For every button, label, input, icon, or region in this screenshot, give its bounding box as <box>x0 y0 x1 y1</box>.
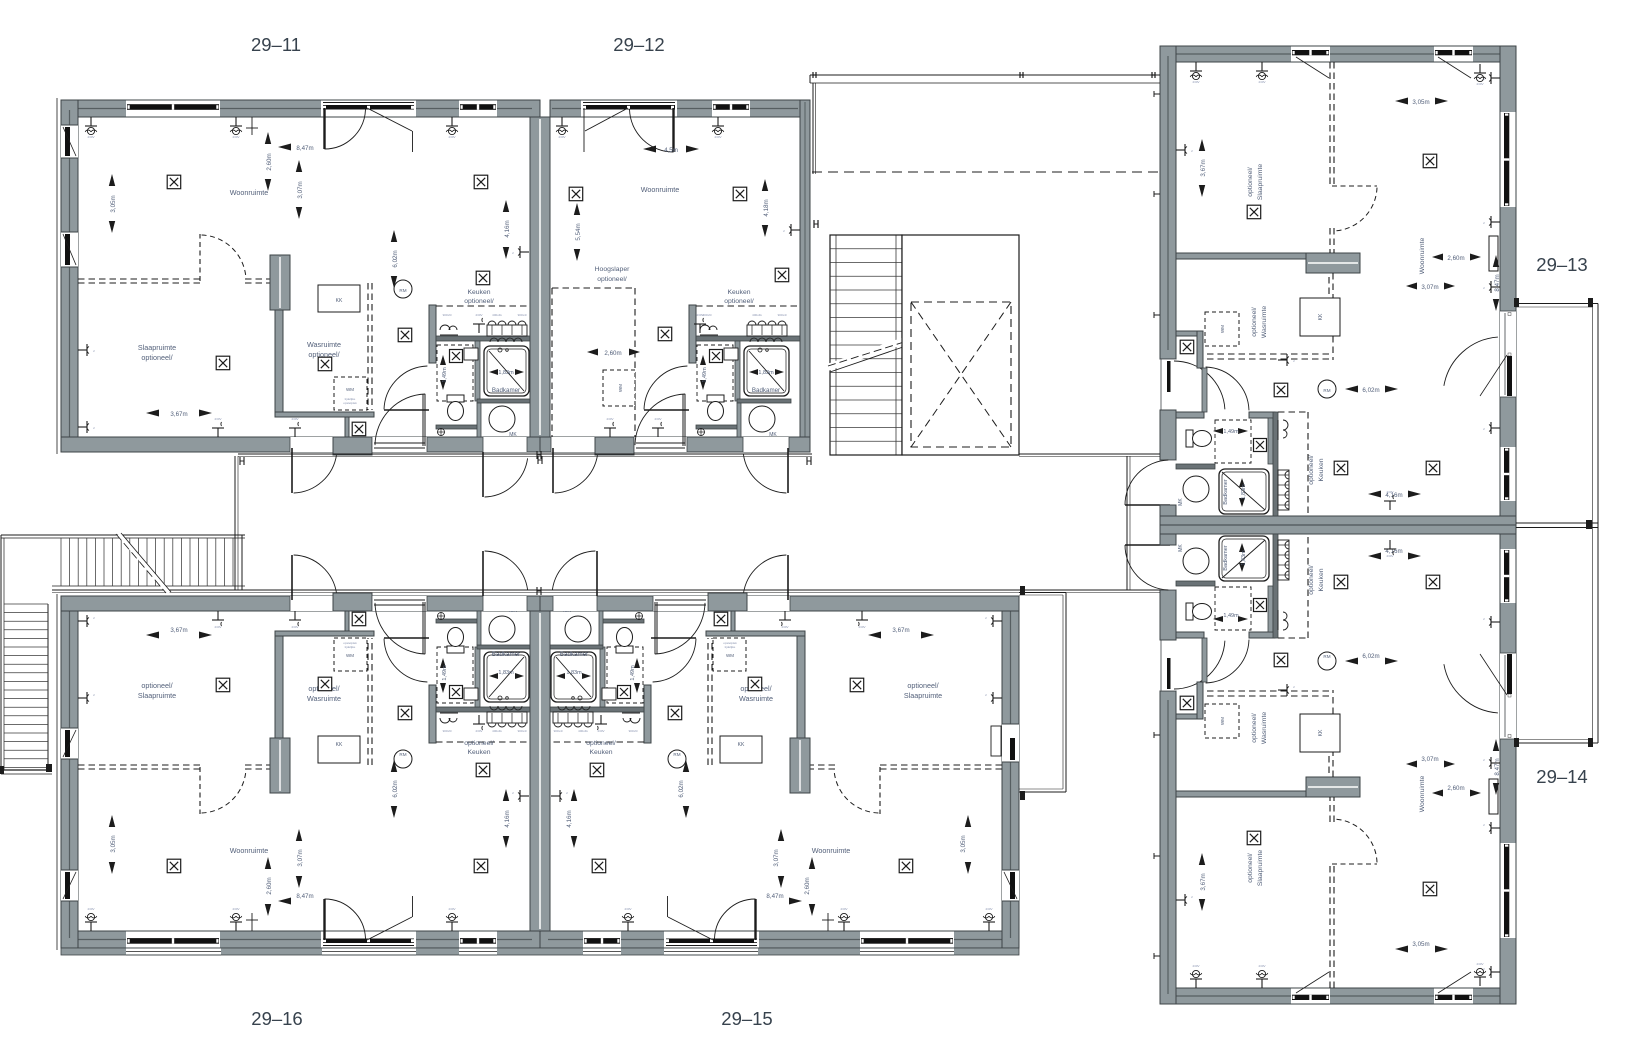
svg-text:3,67m: 3,67m <box>1200 159 1207 176</box>
svg-text:RM: RM <box>673 752 680 757</box>
svg-text:Badkamer: Badkamer <box>492 387 520 394</box>
svg-text:230V: 230V <box>475 313 482 317</box>
svg-text:WM: WM <box>1220 717 1225 725</box>
svg-text:8,47m: 8,47m <box>766 893 783 900</box>
svg-text:opstelplek: opstelplek <box>723 641 737 645</box>
svg-text:230V: 230V <box>448 907 455 911</box>
svg-text:230V: 230V <box>654 417 661 421</box>
svg-text:2,60m: 2,60m <box>1447 785 1464 792</box>
svg-text:6,02m: 6,02m <box>392 250 399 267</box>
svg-text:400x4k: 400x4k <box>492 729 502 733</box>
svg-text:KK: KK <box>738 742 745 748</box>
svg-text:900x4l: 900x4l <box>518 729 527 733</box>
svg-text:2,60m: 2,60m <box>266 877 273 894</box>
svg-text:230V: 230V <box>232 135 239 139</box>
svg-text:230V: 230V <box>214 417 221 421</box>
svg-text:29–11: 29–11 <box>251 34 301 55</box>
svg-text:230V: 230V <box>781 625 788 629</box>
svg-text:230V: 230V <box>985 907 992 911</box>
svg-text:900x4l: 900x4l <box>554 729 563 733</box>
svg-text:1,83m: 1,83m <box>498 370 514 376</box>
svg-text:3,07m: 3,07m <box>297 181 304 198</box>
svg-text:RM: RM <box>399 752 406 757</box>
svg-text:optioneel/: optioneel/ <box>1308 565 1315 595</box>
svg-text:3,07m: 3,07m <box>773 849 780 866</box>
svg-text:8,47m: 8,47m <box>296 893 313 900</box>
svg-text:RM: RM <box>399 288 406 293</box>
svg-text:3,67m: 3,67m <box>1200 873 1207 890</box>
svg-text:optioneel/: optioneel/ <box>141 681 172 690</box>
svg-text:1,83m: 1,83m <box>566 670 582 676</box>
svg-text:Hoogslaper: Hoogslaper <box>595 266 630 273</box>
svg-text:1,49m: 1,49m <box>442 665 448 681</box>
svg-text:6,02m: 6,02m <box>1362 653 1379 660</box>
svg-text:3,67m: 3,67m <box>170 411 187 418</box>
svg-text:optioneel/: optioneel/ <box>724 298 754 305</box>
svg-text:Keuken: Keuken <box>467 289 490 296</box>
svg-text:29–13: 29–13 <box>1536 254 1587 275</box>
svg-text:3,07m: 3,07m <box>297 849 304 866</box>
svg-text:230V: 230V <box>214 625 221 629</box>
svg-text:optioneel/: optioneel/ <box>1247 853 1254 883</box>
svg-text:3,67m: 3,67m <box>170 627 187 634</box>
svg-text:Keuken: Keuken <box>1318 458 1325 481</box>
svg-text:1,49m: 1,49m <box>1223 613 1239 619</box>
svg-text:WM: WM <box>1220 325 1225 333</box>
svg-text:900x6l: 900x6l <box>443 729 452 733</box>
svg-text:230V: 230V <box>1476 962 1483 966</box>
svg-text:Keuken: Keuken <box>727 289 750 296</box>
svg-text:Woonruimte: Woonruimte <box>641 185 680 194</box>
svg-text:6,02m: 6,02m <box>392 780 399 797</box>
svg-text:Keuken: Keuken <box>467 749 490 756</box>
svg-text:3,07m: 3,07m <box>1421 284 1438 291</box>
svg-text:optioneel/: optioneel/ <box>1251 307 1258 337</box>
svg-text:29–14: 29–14 <box>1536 766 1587 787</box>
svg-text:optioneel/: optioneel/ <box>141 353 172 362</box>
svg-text:Wasruimte: Wasruimte <box>307 694 341 703</box>
svg-text:230V: 230V <box>1386 490 1393 494</box>
svg-text:Badkamer: Badkamer <box>560 651 588 658</box>
svg-text:230V: 230V <box>1258 80 1265 84</box>
svg-text:230V: 230V <box>291 625 298 629</box>
svg-text:Slaapruimte: Slaapruimte <box>138 343 176 352</box>
svg-text:3,05m: 3,05m <box>1412 941 1429 948</box>
svg-text:230V: 230V <box>558 135 565 139</box>
svg-text:2,60m: 2,60m <box>1447 255 1464 262</box>
svg-text:tijdelijke: tijdelijke <box>345 645 356 649</box>
svg-text:6,02m: 6,02m <box>678 780 685 797</box>
svg-text:1,49m: 1,49m <box>1223 429 1239 435</box>
svg-text:KK: KK <box>336 298 343 304</box>
svg-text:230V: 230V <box>1258 964 1265 968</box>
svg-text:3,05m: 3,05m <box>960 835 967 852</box>
svg-text:6,02m: 6,02m <box>1362 387 1379 394</box>
svg-text:2,60m: 2,60m <box>266 153 273 170</box>
svg-text:RM: RM <box>1323 654 1330 659</box>
svg-text:optioneel/: optioneel/ <box>1251 713 1258 743</box>
svg-text:400x4k: 400x4k <box>752 313 762 317</box>
svg-text:MK: MK <box>1178 498 1184 506</box>
svg-text:230V: 230V <box>606 417 613 421</box>
svg-text:900x6l: 900x6l <box>703 313 712 317</box>
svg-text:230V: 230V <box>1386 554 1393 558</box>
svg-text:900x4l: 900x4l <box>778 313 787 317</box>
svg-text:230V: 230V <box>291 417 298 421</box>
svg-text:1,49m: 1,49m <box>442 367 448 383</box>
svg-text:Woonruimte: Woonruimte <box>1419 776 1426 813</box>
svg-text:4,16m: 4,16m <box>504 810 511 827</box>
svg-text:tijdelijke: tijdelijke <box>725 645 736 649</box>
svg-text:3,05m: 3,05m <box>1412 99 1429 106</box>
svg-text:400x4k: 400x4k <box>492 313 502 317</box>
svg-text:2,60m: 2,60m <box>604 350 621 357</box>
svg-text:optioneel/: optioneel/ <box>1308 455 1315 485</box>
svg-text:Wasruimte: Wasruimte <box>307 340 341 349</box>
svg-text:230V: 230V <box>475 729 482 733</box>
svg-text:Wasruimte: Wasruimte <box>1261 712 1268 744</box>
svg-text:230V: 230V <box>448 135 455 139</box>
svg-text:Woonruimte: Woonruimte <box>812 846 851 855</box>
svg-text:WM: WM <box>618 384 623 392</box>
svg-text:29–12: 29–12 <box>613 34 664 55</box>
svg-text:1,83m: 1,83m <box>1241 484 1247 500</box>
svg-text:230V: 230V <box>1192 964 1199 968</box>
svg-text:1,83m: 1,83m <box>1241 550 1247 566</box>
svg-text:optioneel/: optioneel/ <box>586 740 616 747</box>
svg-text:4,16m: 4,16m <box>566 810 573 827</box>
svg-text:4,16m: 4,16m <box>504 220 511 237</box>
svg-text:400x4k: 400x4k <box>578 729 588 733</box>
svg-text:opstelplek: opstelplek <box>343 401 357 405</box>
svg-text:Badkamer: Badkamer <box>492 651 520 658</box>
svg-text:Slaapruimte: Slaapruimte <box>138 691 176 700</box>
svg-text:29–16: 29–16 <box>251 1008 302 1029</box>
svg-text:Badkamer: Badkamer <box>752 387 780 394</box>
svg-text:KK: KK <box>336 742 343 748</box>
svg-text:3,67m: 3,67m <box>892 627 909 634</box>
svg-text:230V: 230V <box>597 729 604 733</box>
svg-text:5,54m: 5,54m <box>575 223 582 240</box>
svg-text:1,49m: 1,49m <box>630 665 636 681</box>
svg-text:optioneel/: optioneel/ <box>907 681 938 690</box>
svg-text:8,47m: 8,47m <box>1494 274 1501 291</box>
svg-text:WM: WM <box>726 653 734 658</box>
svg-text:RM: RM <box>1323 388 1330 393</box>
svg-text:Slaapruimte: Slaapruimte <box>1257 850 1264 886</box>
svg-text:optioneel/: optioneel/ <box>464 298 494 305</box>
svg-text:KK: KK <box>1318 729 1324 736</box>
svg-text:3,07m: 3,07m <box>1421 756 1438 763</box>
svg-text:4,5m: 4,5m <box>664 147 678 154</box>
svg-text:WM: WM <box>346 387 354 392</box>
svg-text:2,60m: 2,60m <box>804 877 811 894</box>
svg-text:1,49m: 1,49m <box>702 367 708 383</box>
svg-text:KK: KK <box>1318 313 1324 320</box>
svg-text:230V: 230V <box>840 907 847 911</box>
svg-text:230V: 230V <box>624 907 631 911</box>
svg-text:8,47m: 8,47m <box>296 145 313 152</box>
svg-text:230V: 230V <box>1192 80 1199 84</box>
svg-text:Keuken: Keuken <box>1318 568 1325 591</box>
svg-text:230V: 230V <box>232 907 239 911</box>
svg-text:900x4l: 900x4l <box>518 313 527 317</box>
svg-text:900x6l: 900x6l <box>629 729 638 733</box>
svg-text:WM: WM <box>346 653 354 658</box>
svg-text:Wasruimte: Wasruimte <box>1261 306 1268 338</box>
svg-text:3,05m: 3,05m <box>110 835 117 852</box>
svg-text:MK: MK <box>1178 544 1184 552</box>
svg-text:230V: 230V <box>858 625 865 629</box>
svg-text:Woonruimte: Woonruimte <box>1419 238 1426 275</box>
svg-text:Badkamer: Badkamer <box>1223 545 1229 571</box>
svg-text:230V: 230V <box>714 135 721 139</box>
svg-text:opstelplek: opstelplek <box>343 641 357 645</box>
svg-text:1,83m: 1,83m <box>498 670 514 676</box>
svg-text:Slaapruimte: Slaapruimte <box>1257 164 1264 200</box>
svg-text:8,47m: 8,47m <box>1494 758 1501 775</box>
svg-text:Keuken: Keuken <box>589 749 612 756</box>
svg-text:optioneel/: optioneel/ <box>597 276 627 283</box>
svg-text:900x6l: 900x6l <box>443 313 452 317</box>
svg-text:1,83m: 1,83m <box>758 370 774 376</box>
svg-text:optioneel/: optioneel/ <box>1247 167 1254 197</box>
svg-text:Badkamer: Badkamer <box>1223 479 1229 505</box>
svg-text:Woonruimte: Woonruimte <box>230 188 269 197</box>
svg-text:230V: 230V <box>87 907 94 911</box>
svg-text:Slaapruimte: Slaapruimte <box>904 691 942 700</box>
svg-text:Wasruimte: Wasruimte <box>739 694 773 703</box>
svg-text:3,05m: 3,05m <box>110 195 117 212</box>
svg-text:Woonruimte: Woonruimte <box>230 846 269 855</box>
svg-text:230V: 230V <box>87 135 94 139</box>
svg-text:optioneel/: optioneel/ <box>464 740 494 747</box>
svg-text:4,18m: 4,18m <box>763 199 770 216</box>
svg-text:29–15: 29–15 <box>721 1008 772 1029</box>
svg-text:230V: 230V <box>696 313 703 317</box>
svg-text:230V: 230V <box>1476 82 1483 86</box>
